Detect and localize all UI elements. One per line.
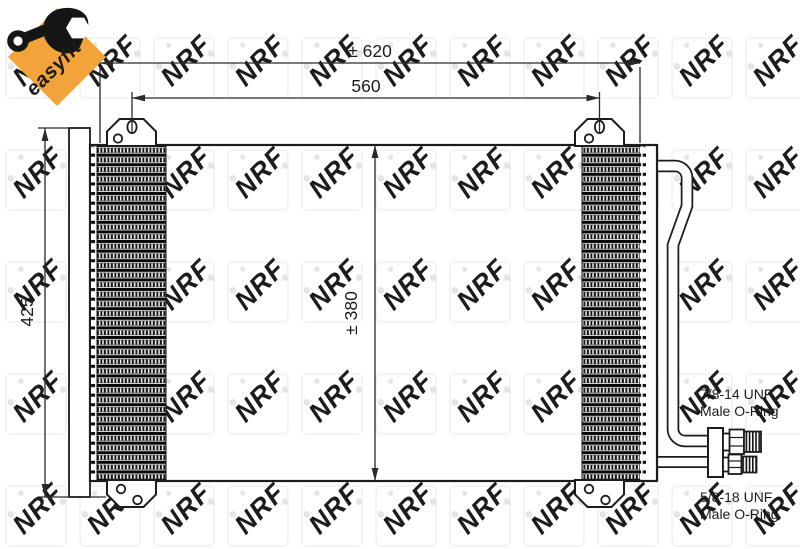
receiver-drier [69, 128, 90, 497]
fitting-bottom [723, 455, 757, 475]
fitting-top [723, 430, 761, 455]
connector-block [708, 428, 723, 477]
dimension-overall-width-label: ± 620 [348, 41, 392, 61]
dimension-height-label: 425 [17, 297, 37, 326]
left-tube-ends [91, 147, 97, 480]
fitting-bottom-thread-label: 5/8-18 UNF [700, 489, 772, 505]
left-fin-band [97, 147, 166, 480]
bracket-bottom-right [575, 480, 624, 507]
right-tube-ends [640, 147, 646, 480]
drawing-canvas: NRF [0, 0, 800, 549]
technical-drawing-page: NRF [0, 0, 800, 549]
fitting-top-type-label: Male O-Ring [700, 403, 779, 419]
right-tank [646, 147, 656, 480]
right-fin-band [582, 147, 640, 480]
dimension-core-height-label: ± 380 [341, 291, 361, 335]
bracket-bottom-left [107, 480, 156, 507]
fitting-top-thread-label: 7/8-14 UNF [700, 386, 772, 402]
dimension-mounting-width-label: 560 [351, 76, 380, 96]
fitting-bottom-type-label: Male O-Ring [700, 506, 779, 522]
